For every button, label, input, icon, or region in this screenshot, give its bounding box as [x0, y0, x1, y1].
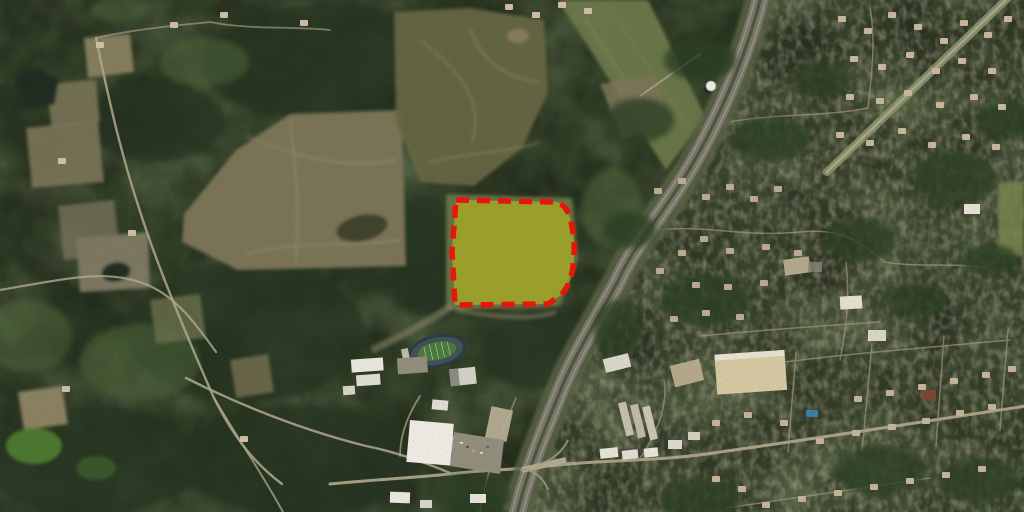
parcel-fill[interactable]	[452, 200, 574, 305]
parcel-highlight-overlay[interactable]	[452, 200, 574, 305]
satellite-map-view[interactable]	[0, 0, 1024, 512]
satellite-image	[0, 0, 1024, 512]
